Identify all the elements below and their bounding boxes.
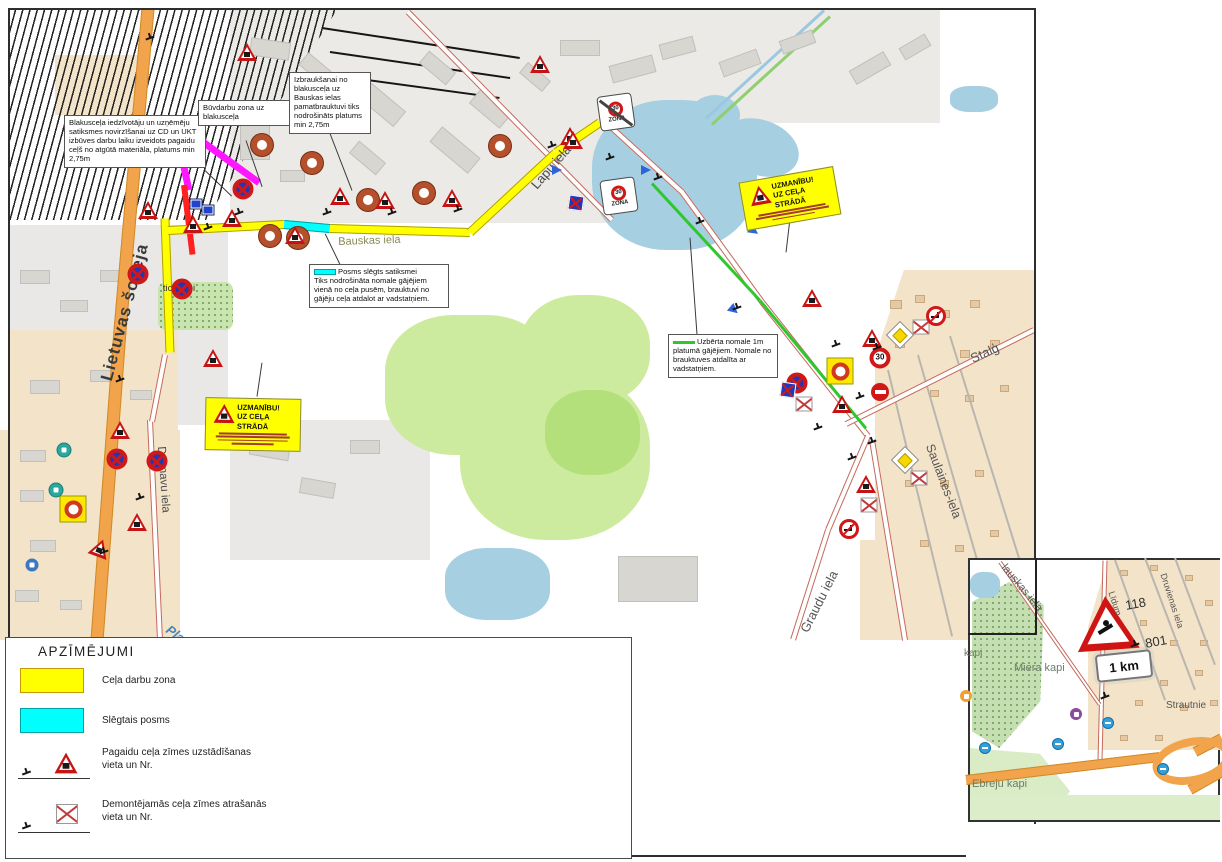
pole-sign: [1101, 696, 1110, 698]
pole-sign: [454, 209, 463, 211]
legend-label: Pagaidu ceļa zīmes uzstādīšanas vieta un…: [102, 746, 272, 772]
ydonut-sign: [827, 358, 854, 385]
tri-sign: [285, 226, 305, 244]
nostop-sign: [128, 264, 149, 285]
roadworks-icon: [748, 184, 772, 206]
tri-sign: [862, 329, 882, 347]
street-label: kapi: [964, 648, 982, 659]
donut-sign: [251, 134, 273, 156]
legend-line: [18, 832, 90, 833]
pole-sign: [654, 177, 663, 179]
nostop-sign: [147, 451, 168, 472]
house: [970, 300, 980, 308]
bluearrow-sign: [641, 165, 651, 175]
inset-water: [970, 572, 1000, 598]
building: [30, 540, 56, 552]
building: [618, 556, 698, 602]
donut-sign: [489, 135, 511, 157]
noleft-sign: [926, 306, 946, 326]
tri-sign: [330, 187, 350, 205]
legend-title: APZĪMĒJUMI: [38, 644, 135, 659]
tri-sign: [563, 131, 583, 149]
noleft-sign: [839, 519, 859, 539]
noentry-sign: [871, 383, 889, 401]
pole-sign: [868, 441, 877, 443]
tri-sign: [442, 189, 462, 207]
annotation-buvdarbu: Būvdarbu zona uz blakusceļa: [198, 100, 290, 126]
building: [560, 40, 600, 56]
map-corner-line: [1035, 558, 1037, 635]
roadworks-icon: [55, 753, 78, 774]
house: [1140, 620, 1147, 626]
house: [975, 470, 984, 477]
leader-line: [690, 237, 698, 334]
tri-sign: [127, 513, 147, 531]
purpoi-sign: [1070, 708, 1082, 720]
pole-icon: [22, 825, 31, 830]
building: [30, 380, 60, 394]
cyan-swatch: [314, 269, 336, 275]
house: [1160, 680, 1168, 686]
house: [1150, 565, 1158, 571]
house: [1185, 575, 1193, 581]
pole-sign: [116, 379, 125, 381]
park-area: [520, 295, 650, 405]
pole-sign: [323, 212, 332, 214]
annotation-posms: Posms slēgts satiksmei Tiks nodrošināta …: [309, 264, 449, 308]
pole-sign: [548, 145, 557, 147]
building: [20, 490, 44, 502]
crossed-sign: [911, 471, 928, 486]
pole-sign: [696, 221, 705, 223]
legend-swatch-cyan: [20, 708, 84, 733]
legend-label: Demontējamās ceļa zīmes atrašanās vieta …: [102, 798, 272, 824]
zona-sign: 30ZONA: [602, 179, 637, 214]
green-swatch: [673, 341, 695, 344]
warning-subtitle: UZ CEĻA STRĀDĀ: [237, 412, 270, 431]
building: [60, 600, 82, 610]
house: [990, 530, 999, 537]
pole-sign: [146, 37, 155, 39]
tri-sign: [375, 191, 395, 209]
busdot-sign: [1157, 763, 1169, 775]
house: [1135, 700, 1143, 706]
pole-sign: [856, 396, 865, 398]
lake: [690, 95, 740, 135]
building: [350, 440, 380, 454]
house: [915, 295, 925, 303]
house: [1155, 735, 1163, 741]
warning-title: UZMANĪBU!: [237, 403, 280, 413]
nostop-sign: [233, 179, 254, 200]
donut-sign: [259, 225, 281, 247]
posms-body: Tiks nodrošināta nomale gājējiem vienā n…: [314, 277, 444, 304]
tri-sign: [802, 289, 822, 307]
pole-sign: [1131, 644, 1140, 646]
tri-sign: [832, 395, 852, 413]
street-label: Strautnie: [1166, 700, 1206, 711]
map-corner-line: [968, 633, 1037, 635]
orgpoi-sign: [960, 690, 972, 702]
pond: [950, 86, 998, 112]
pole-icon: [22, 771, 31, 776]
leader-line: [257, 362, 263, 396]
nostop-sign: [107, 449, 128, 470]
legend-line: [18, 778, 90, 779]
fine-print-line: [219, 432, 286, 435]
house: [1195, 670, 1203, 676]
donut-sign: [301, 152, 323, 174]
tri-sign: [530, 55, 550, 73]
crossed-sign: [861, 498, 878, 513]
fine-print-line: [217, 439, 288, 442]
building: [130, 390, 152, 400]
tri-sign: [856, 475, 876, 493]
legend-panel: APZĪMĒJUMI Ceļa darbu zona Slēgtais posm…: [5, 637, 632, 859]
pole-sign: [814, 427, 823, 429]
house: [1120, 735, 1128, 741]
building: [20, 450, 46, 462]
tri-sign: [237, 43, 257, 61]
street-label: Bauskas iela: [338, 234, 401, 248]
teal-sign: [58, 444, 71, 457]
traffic-management-plan: Blakusceļa iedzīvotāju un uzņēmēju satik…: [0, 0, 1222, 862]
pole-sign: [100, 551, 109, 553]
legend-label: Slēgtais posms: [102, 714, 272, 727]
teal-sign: [50, 484, 63, 497]
bluecross-sign: [569, 196, 584, 211]
annotation-uzberta: Uzbērta nomale 1m platumā gājējiem. Noma…: [668, 334, 778, 378]
pond: [445, 548, 550, 620]
inset-1km-plate: 1 km: [1095, 649, 1154, 683]
building: [15, 590, 39, 602]
pole-sign: [848, 457, 857, 459]
busdot-sign: [1102, 717, 1114, 729]
tri-sign: [110, 421, 130, 439]
busdot-sign: [979, 742, 991, 754]
bluearrow-sign: [552, 165, 562, 175]
roadworks-icon: [214, 404, 235, 423]
street-label: Ebreju kapi: [972, 778, 1027, 790]
annotation-izbrauksanai: Izbraukšanai no blakusceļa uz Bauskas ie…: [289, 72, 371, 134]
legend-removed-sign-icon: [16, 798, 101, 840]
pole-sign: [606, 157, 615, 159]
warning-board-left: UZMANĪBU! UZ CEĻA STRĀDĀ: [205, 397, 302, 451]
legend-swatch-yellow: [20, 668, 84, 693]
park-area: [545, 390, 640, 475]
removed-sign-icon: [56, 804, 78, 824]
building: [60, 300, 88, 312]
donut-sign: [413, 182, 435, 204]
busdot-sign: [1052, 738, 1064, 750]
bluerect-sign: [203, 206, 214, 215]
ydiamond-sign: [890, 325, 910, 345]
bluepoi-sign: [26, 559, 39, 572]
pole-sign: [832, 344, 841, 346]
white-mask: [966, 824, 1222, 862]
house: [930, 390, 939, 397]
legend-temporary-sign-icon: [16, 746, 101, 788]
fine-print-line: [232, 443, 273, 446]
pole-sign: [204, 227, 213, 229]
pole-sign: [873, 347, 882, 349]
ydonut-sign: [60, 496, 87, 523]
inset-green-strip: [970, 795, 1220, 820]
tri-sign: [203, 349, 223, 367]
bluecross-sign: [781, 383, 796, 398]
house: [1205, 600, 1213, 606]
street-label: Miera kapi: [1014, 662, 1065, 674]
ydiamond-sign: [895, 450, 915, 470]
house: [1000, 385, 1009, 392]
nostop-sign: [172, 279, 193, 300]
legend-label: Ceļa darbu zona: [102, 674, 272, 687]
building: [20, 270, 50, 284]
tri-sign: [183, 215, 203, 233]
tri-sign: [138, 201, 158, 219]
pole-sign: [388, 212, 397, 214]
posms-title: Posms slēgts satiksmei: [338, 267, 417, 276]
zonax-sign: 30ZONA: [599, 95, 634, 130]
bluerect-sign: [191, 200, 202, 209]
annotation-blakuscela: Blakusceļa iedzīvotāju un uzņēmēju satik…: [64, 115, 206, 168]
pole-sign: [136, 497, 145, 499]
pole-sign: [733, 307, 742, 309]
crossed-sign: [796, 397, 813, 412]
pole-sign: [235, 212, 244, 214]
